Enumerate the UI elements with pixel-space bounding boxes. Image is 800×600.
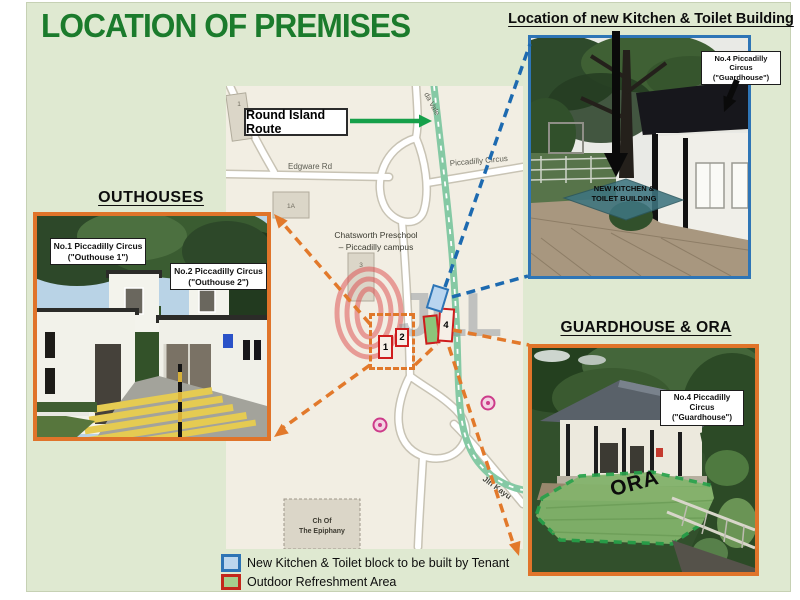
guardhouse-photo bbox=[532, 348, 755, 572]
outhouse2-label: No.2 Piccadilly Circus ("Outhouse 2") bbox=[170, 263, 267, 290]
legend-swatch-ora bbox=[221, 574, 241, 590]
outhouse1-label-line1: No.1 Piccadilly Circus bbox=[53, 241, 143, 252]
fire-extinguisher-box bbox=[656, 448, 663, 457]
new-kitchen-area-label: NEW KITCHEN & TOILET BUILDING bbox=[561, 184, 687, 204]
transit-stop-icons bbox=[374, 397, 495, 432]
slide-canvas: LOCATION OF PREMISES Location of new Kit… bbox=[0, 0, 800, 600]
map-marker-outhouse2: 2 bbox=[395, 328, 409, 347]
striped-pole bbox=[178, 364, 182, 437]
guardhouse-label-line2: ("Guardhouse") bbox=[663, 413, 741, 423]
legend-label-ora: Outdoor Refreshment Area bbox=[247, 575, 396, 589]
church-label-line1: Ch Of bbox=[312, 518, 332, 525]
preschool-label-line2: – Piccadilly campus bbox=[339, 242, 414, 252]
legend-swatch-kitchen bbox=[221, 554, 241, 572]
marker-1-number: 1 bbox=[383, 342, 388, 353]
kitchen-section-heading: Location of new Kitchen & Toilet Buildin… bbox=[506, 11, 796, 27]
legend-item-ora: Outdoor Refreshment Area bbox=[221, 574, 396, 590]
building-1a-label: 1A bbox=[287, 203, 296, 210]
round-island-route-callout: Round Island Route bbox=[244, 108, 348, 136]
legend-item-kitchen: New Kitchen & Toilet block to be built b… bbox=[221, 554, 509, 572]
outhouse2-label-line1: No.2 Piccadilly Circus bbox=[173, 266, 264, 277]
kitchen-guardhouse-label: No.4 Piccadilly Circus ("Guardhouse") bbox=[701, 51, 781, 85]
marker-4-number: 4 bbox=[443, 319, 449, 330]
new-kitchen-label-line2: TOILET BUILDING bbox=[561, 194, 687, 204]
building-1-label: 1 bbox=[237, 101, 241, 108]
guardhouse-label: No.4 Piccadilly Circus ("Guardhouse") bbox=[660, 390, 744, 426]
map-marker-outhouse1: 1 bbox=[378, 335, 393, 359]
legend-label-kitchen: New Kitchen & Toilet block to be built b… bbox=[247, 556, 509, 570]
outhouse2-label-line2: ("Outhouse 2") bbox=[173, 277, 264, 288]
outhouses-photo-inset: No.1 Piccadilly Circus ("Outhouse 1") No… bbox=[33, 212, 271, 441]
map-marker-guardhouse: 4 bbox=[437, 307, 455, 342]
church-label-line2: The Epiphany bbox=[299, 528, 345, 535]
kitchen-label-line2: ("Guardhouse") bbox=[704, 73, 778, 82]
outhouse1-label: No.1 Piccadilly Circus ("Outhouse 1") bbox=[50, 238, 146, 265]
edgware-rd-label: Edgware Rd bbox=[288, 162, 332, 171]
outhouses-section-heading: OUTHOUSES bbox=[61, 189, 241, 207]
guardhouse-photo-inset: ORA No.4 Piccadilly Circus ("Guardhouse"… bbox=[528, 344, 759, 576]
guardhouse-label-line1: No.4 Piccadilly Circus bbox=[663, 393, 741, 413]
piccadilly-circus-label: Piccadilly Circus bbox=[449, 154, 508, 168]
outhouse1-label-line2: ("Outhouse 1") bbox=[53, 252, 143, 263]
slide-background: LOCATION OF PREMISES Location of new Kit… bbox=[26, 2, 791, 592]
kitchen-label-line1: No.4 Piccadilly Circus bbox=[704, 54, 778, 73]
page-title: LOCATION OF PREMISES bbox=[41, 7, 410, 45]
jll-watermark: JLL bbox=[337, 269, 500, 357]
marker-2-number: 2 bbox=[399, 332, 404, 343]
new-kitchen-label-line1: NEW KITCHEN & bbox=[561, 184, 687, 194]
guardhouse-section-heading: GUARDHOUSE & ORA bbox=[526, 319, 766, 337]
preschool-label-line1: Chatsworth Preschool bbox=[334, 230, 417, 240]
